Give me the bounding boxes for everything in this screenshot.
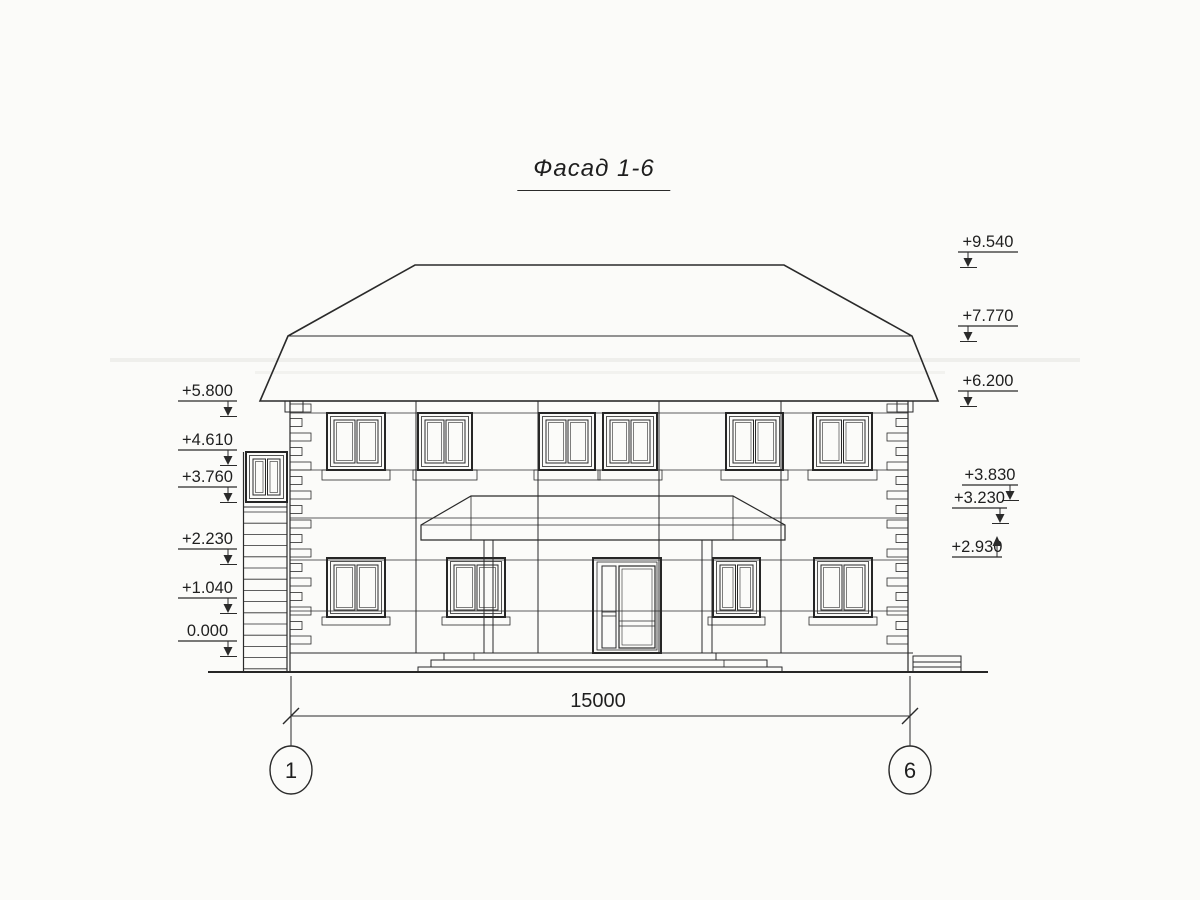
elevation-arrow-head [964, 258, 973, 267]
window-casement [253, 459, 266, 495]
window-casement [546, 420, 566, 463]
window-casement [733, 420, 754, 463]
elevation-mark: +3.760 [178, 468, 237, 503]
lower-floor-window [327, 558, 385, 617]
quoin-brick-left [290, 535, 302, 543]
elevation-mark-label: +3.830 [965, 466, 1016, 484]
window-frame [418, 413, 472, 470]
quoin-brick-right [887, 549, 908, 557]
quoin-brick-right [887, 462, 908, 470]
upper-floor-window [813, 413, 872, 470]
quoin-brick-left [290, 578, 311, 586]
quoin-brick-right [887, 433, 908, 441]
elevation-arrow-head [964, 332, 973, 341]
window-casement [844, 420, 866, 463]
window-pane [740, 568, 751, 608]
window-pane [823, 423, 840, 461]
elevation-arrow-head [1006, 491, 1015, 500]
window-frame-inner [250, 456, 284, 499]
window-frame [327, 558, 385, 617]
elevation-mark-label: +9.540 [963, 233, 1014, 251]
canopy-post [702, 540, 712, 653]
window-pane [457, 568, 473, 608]
window-frame [603, 413, 657, 470]
quoin-brick-right [887, 520, 908, 528]
quoin-brick-right [887, 491, 908, 499]
elevation-arrow-head [224, 647, 233, 656]
elevation-arrow-head [224, 407, 233, 416]
quoin-brick-right [896, 535, 908, 543]
quoin-brick-left [290, 477, 302, 485]
elevation-arrow-head [224, 456, 233, 465]
window-frame [327, 413, 385, 470]
window-casement [477, 565, 498, 610]
scan-streak [255, 371, 945, 374]
upper-floor-window [418, 413, 472, 470]
elevation-arrow-head [996, 514, 1005, 523]
quoin-brick-left [290, 549, 311, 557]
window-pane [270, 462, 278, 493]
lower-floor-window [814, 558, 872, 617]
window-casement [268, 459, 281, 495]
window-pane [723, 568, 734, 608]
door-leaf-inner [622, 569, 652, 645]
window-frame [447, 558, 505, 617]
quoin-brick-left [290, 593, 302, 601]
window-sill [809, 617, 877, 625]
window-pane [360, 568, 376, 608]
elevation-mark: 0.000 [178, 622, 237, 657]
window-casement [454, 565, 475, 610]
window-pane [360, 423, 376, 461]
window-frame-inner [543, 417, 592, 467]
window-casement [334, 565, 355, 610]
window-pane [337, 568, 353, 608]
window-frame-inner [422, 417, 469, 467]
elevation-mark-label: +3.760 [182, 468, 233, 486]
window-pane [736, 423, 752, 461]
window-pane [549, 423, 564, 461]
window-pane [824, 568, 840, 608]
quoin-brick-left [290, 491, 311, 499]
side-steps [913, 656, 961, 672]
step [913, 662, 961, 667]
axis-label-1: 1 [285, 758, 297, 783]
roof [260, 265, 938, 401]
door-frame [593, 558, 661, 653]
drawing-sheet: Фасад 1-6 [0, 0, 1200, 900]
elevation-mark-label: +7.770 [963, 307, 1014, 325]
elevation-mark: +5.800 [178, 382, 237, 417]
window-pane [613, 423, 627, 461]
window-pane [256, 462, 264, 493]
lower-floor-window [447, 558, 505, 617]
window-pane [337, 423, 353, 461]
elevation-mark: +7.770 [958, 307, 1018, 342]
elevation-arrow-head [964, 397, 973, 406]
quoin-brick-left [290, 419, 302, 427]
quoin-brick-left [290, 404, 311, 412]
window-frame-inner [607, 417, 654, 467]
quoin-brick-right [896, 448, 908, 456]
elevation-mark-label: +6.200 [963, 372, 1014, 390]
window-pane [449, 423, 463, 461]
facade-drawing: +5.800+4.610+3.760+2.230+1.0400.000+9.54… [0, 0, 1200, 900]
scan-artifacts [110, 358, 1080, 374]
window-frame [726, 413, 783, 470]
window-casement [357, 420, 378, 463]
quoin-brick-left [290, 462, 311, 470]
elevation-mark-label: +2.230 [182, 530, 233, 548]
window-casement [610, 420, 629, 463]
window-casement [357, 565, 378, 610]
eaves-block [897, 401, 913, 412]
quoin-brick-left [290, 448, 302, 456]
window-frame [539, 413, 595, 470]
dimension-value: 15000 [570, 690, 626, 712]
step [444, 653, 716, 660]
quoin-brick-left [290, 622, 302, 630]
quoin-brick-left [290, 520, 311, 528]
window-pane [428, 423, 442, 461]
window-frame [813, 413, 872, 470]
upper-floor-window [327, 413, 385, 470]
eaves-block [285, 401, 303, 412]
window-pane [758, 423, 774, 461]
window-casement [334, 420, 355, 463]
upper-floor-window [726, 413, 783, 470]
window-pane [847, 568, 863, 608]
entrance-door [593, 558, 661, 653]
quoin-brick-right [896, 564, 908, 572]
quoin-brick-left [290, 564, 302, 572]
quoin-brick-left [290, 506, 302, 514]
quoin-brick-left [290, 636, 311, 644]
quoin-brick-right [887, 636, 908, 644]
quoin-brick-right [896, 506, 908, 514]
wall [285, 401, 913, 672]
elevation-arrow-head [224, 555, 233, 564]
entrance-canopy [421, 496, 785, 653]
window-sill [322, 617, 390, 625]
ladder-window [246, 452, 287, 502]
window-casement [425, 420, 444, 463]
window-casement [844, 565, 865, 610]
elevation-mark-label: +3.230 [954, 489, 1005, 507]
roof-outline [260, 265, 938, 401]
window-apron [413, 470, 477, 480]
window-sill [442, 617, 510, 625]
upper-floor-window [539, 413, 595, 470]
elevation-mark: +2.230 [178, 530, 237, 565]
axis-label-6: 6 [904, 758, 916, 783]
window-frame [814, 558, 872, 617]
window-pane [846, 423, 863, 461]
window-casement [821, 565, 842, 610]
quoin-brick-right [896, 622, 908, 630]
quoin-brick-right [896, 477, 908, 485]
quoin-brick-right [896, 419, 908, 427]
window-pane [571, 423, 586, 461]
window-apron [721, 470, 788, 480]
window-casement [568, 420, 588, 463]
elevation-mark: +2.930 [952, 536, 1003, 557]
step [431, 660, 767, 667]
door-leaf [619, 566, 655, 648]
dimension-group: 15000 1 6 [270, 676, 931, 794]
wall-outline [290, 401, 908, 672]
window-apron [322, 470, 390, 480]
canopy-post [484, 540, 493, 653]
elevation-mark-label: +4.610 [182, 431, 233, 449]
elevation-mark: +9.540 [958, 233, 1018, 268]
window-frame-inner [817, 417, 869, 467]
quoin-brick-right [887, 578, 908, 586]
quoin-brick-left [290, 433, 311, 441]
elevation-mark: +3.230 [952, 489, 1009, 524]
window-casement [631, 420, 650, 463]
window-apron [534, 470, 600, 480]
upper-floor-window [603, 413, 657, 470]
elevation-mark-label: 0.000 [187, 622, 228, 640]
step [913, 656, 961, 662]
window-frame-inner [730, 417, 780, 467]
lower-floor-window [713, 558, 760, 617]
quoin-brick-right [896, 593, 908, 601]
window-casement [820, 420, 842, 463]
elevation-mark-label: +5.800 [182, 382, 233, 400]
entrance-steps [418, 653, 782, 672]
elevation-mark-label: +1.040 [182, 579, 233, 597]
window-sill [708, 617, 765, 625]
window-frame-inner [451, 562, 502, 614]
window-frame [246, 452, 287, 502]
door-frame-inner [597, 562, 657, 650]
elevation-mark-label: +2.930 [952, 538, 1003, 556]
elevation-mark: +1.040 [178, 579, 237, 614]
window-casement [756, 420, 777, 463]
window-pane [634, 423, 648, 461]
elevation-arrow-head [224, 604, 233, 613]
side-ladder [244, 452, 288, 672]
window-frame-inner [331, 417, 382, 467]
scan-streak [110, 358, 1080, 362]
window-casement [446, 420, 465, 463]
window-apron [598, 470, 662, 480]
window-frame-inner [331, 562, 382, 614]
elevation-mark: +4.610 [178, 431, 237, 466]
window-apron [808, 470, 877, 480]
elevation-arrow-head [224, 493, 233, 502]
door-sidelight [602, 566, 616, 648]
elevation-mark: +6.200 [958, 372, 1018, 407]
window-frame-inner [818, 562, 869, 614]
